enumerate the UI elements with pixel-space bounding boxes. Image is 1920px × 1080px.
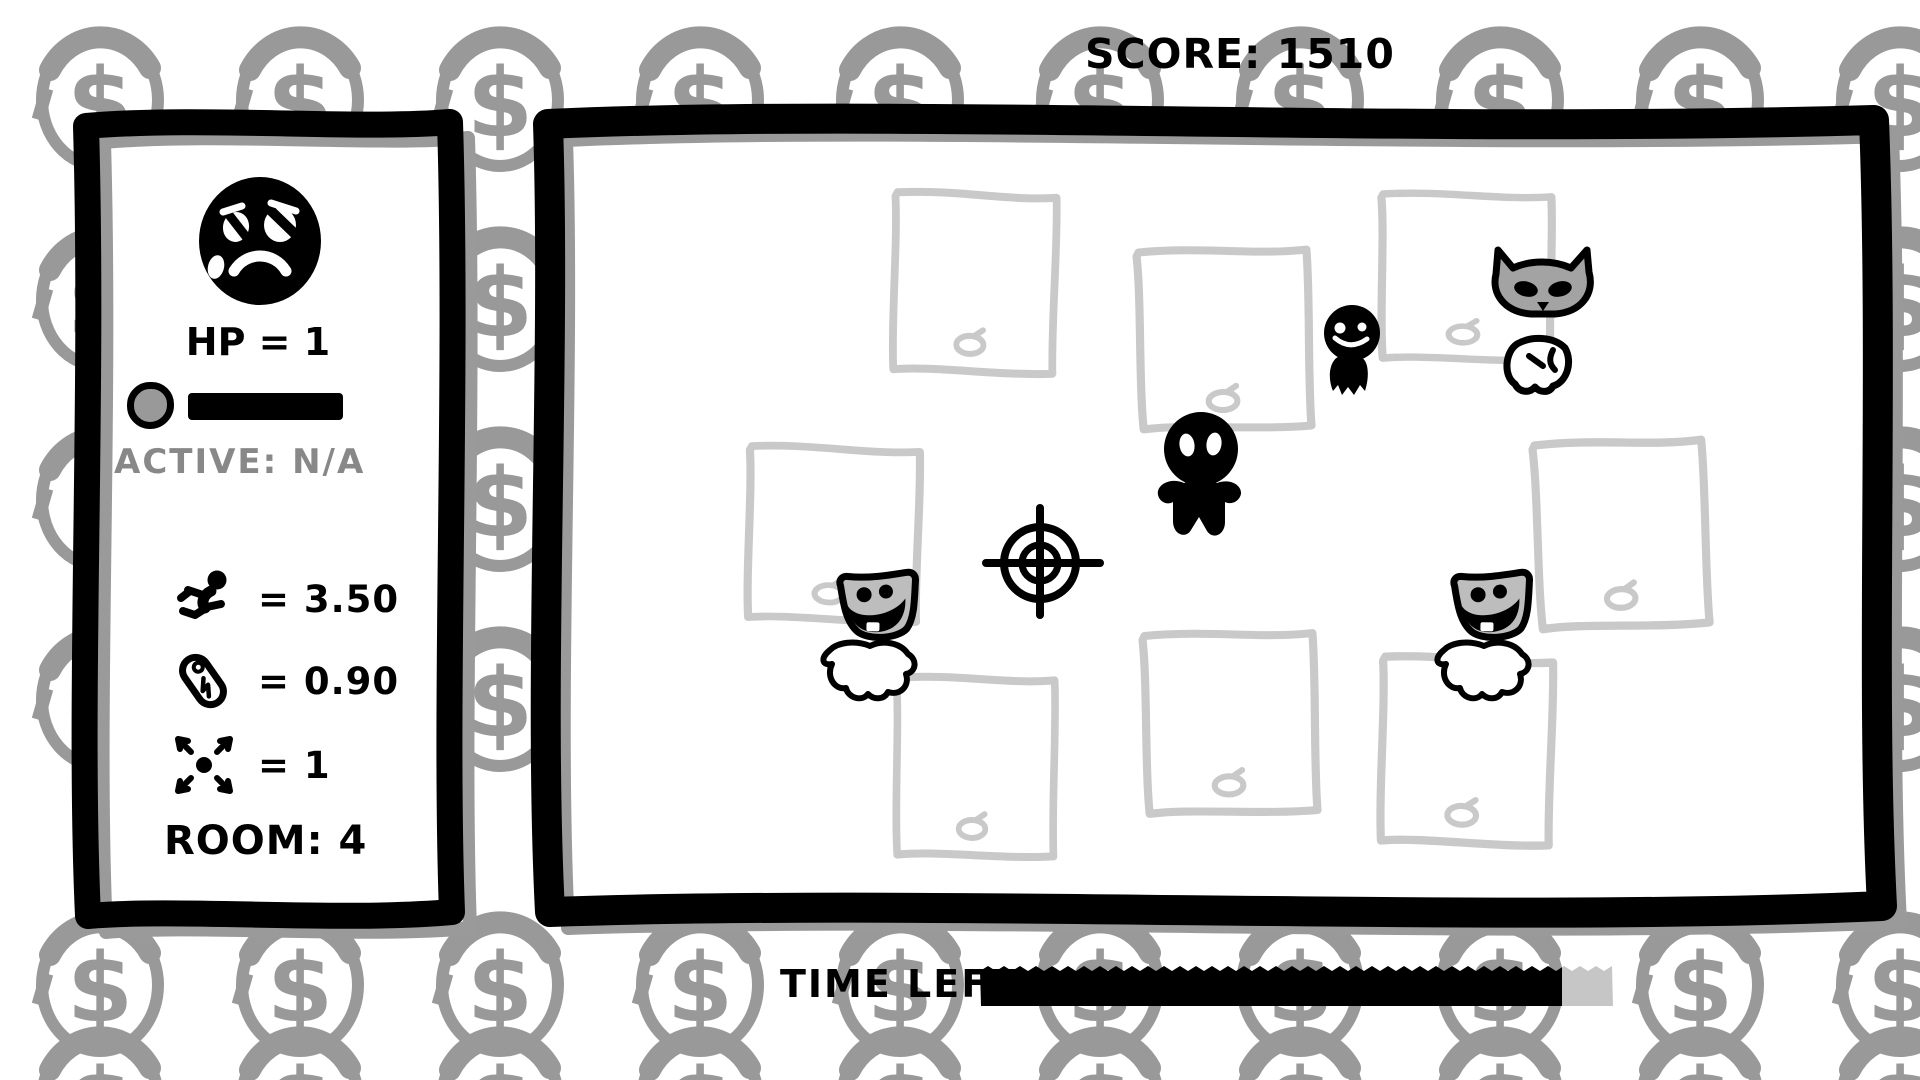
rock-obstacle bbox=[893, 676, 1056, 857]
stat-range-value: = 1 bbox=[258, 744, 331, 787]
time-left-bar bbox=[980, 966, 1613, 1006]
stat-row-pill: = 0.90 bbox=[168, 648, 399, 714]
pill-icon bbox=[168, 645, 238, 717]
active-item-label: ACTIVE: N/A bbox=[114, 442, 365, 482]
rock-obstacle bbox=[889, 191, 1058, 375]
room-counter-label: ROOM: 4 bbox=[164, 818, 367, 864]
score-display: SCORE: 1510 bbox=[1085, 30, 1395, 78]
score-value: 1510 bbox=[1277, 30, 1395, 78]
player-face-icon bbox=[194, 172, 326, 310]
range-arrows-icon bbox=[170, 731, 238, 799]
score-label: SCORE: bbox=[1085, 30, 1261, 78]
hp-label: HP = 1 bbox=[98, 320, 418, 364]
rock-obstacle bbox=[1142, 632, 1317, 815]
hp-orb bbox=[127, 382, 174, 429]
hp-bar bbox=[188, 393, 343, 420]
rock-obstacle bbox=[1136, 248, 1311, 430]
rock-obstacle bbox=[1532, 438, 1709, 629]
time-left-bar-fill bbox=[980, 966, 1562, 1006]
stat-speed-value: = 3.50 bbox=[258, 578, 399, 621]
speed-run-icon bbox=[172, 566, 238, 632]
stat-row-speed: = 3.50 bbox=[172, 566, 399, 632]
stat-pill-value: = 0.90 bbox=[258, 660, 399, 703]
time-left-bar-remainder bbox=[1562, 966, 1613, 1006]
stat-row-range: = 1 bbox=[170, 732, 331, 798]
game-canvas[interactable] bbox=[0, 0, 1920, 1080]
